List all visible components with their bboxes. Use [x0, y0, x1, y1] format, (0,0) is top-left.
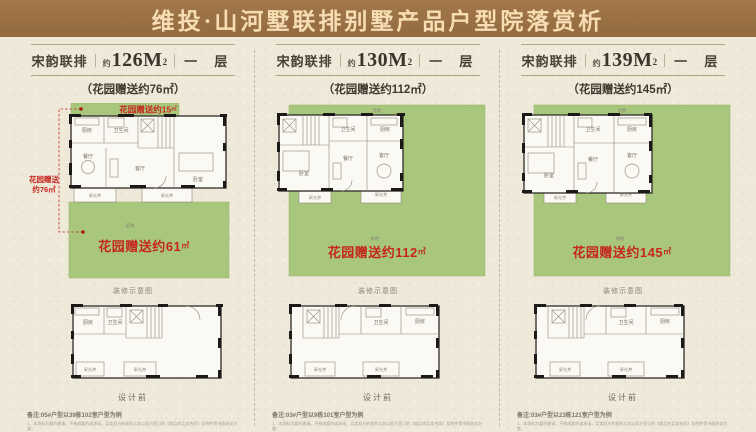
disclaimer-text: 1、本资料为要约邀请，不构成要约或承诺，买卖双方的权利义务以双方签订的《商品房买… [272, 421, 484, 432]
approx-label: 约 [348, 58, 356, 69]
room-label-living: 客厅 [378, 152, 388, 159]
room-label-bedroom: 卧室 [298, 170, 308, 177]
room-label-lightwell: 采光井 [619, 366, 632, 373]
unit-panel-139: 宋韵联排 约139M2 一 层 （花园赠送约145㎡） 卫生间 厨房 餐厅 [507, 44, 739, 432]
yard-label-south: 南院 [370, 235, 379, 242]
room-label-bath: 卫生间 [340, 126, 355, 133]
original-plan-caption: 设计前 [262, 392, 494, 403]
room-label-kitchen: 厨房 [626, 126, 636, 133]
disclaimer-line: 1、本资料为要约邀请，不构成要约或承诺，买卖双方的权利义务以双方签订的《商品房买… [27, 421, 239, 432]
panel-separator [254, 50, 255, 426]
approx-label: 约 [593, 58, 601, 69]
unit-panel-126: 宋韵联排 约126M2 一 层 （花园赠送约76㎡） 厨房 卫生间 餐厅 [17, 44, 249, 432]
room-label-lightwell: 采光井 [374, 191, 387, 198]
room-label-kitchen: 厨房 [379, 126, 389, 133]
room-label-living: 客厅 [626, 152, 636, 159]
floor-label: 一 层 [674, 51, 724, 70]
yard-label-south: 南院 [615, 235, 624, 242]
poster: 维投·山河墅联排别墅产品户型院落赏析 宋韵联排 约126M2 一 层 （花园赠送… [0, 0, 756, 432]
series-name: 宋韵联排 [32, 51, 88, 70]
garden-main-size: 花园赠送约112㎡ [327, 245, 425, 260]
room-label-bath: 卫生间 [585, 126, 600, 133]
unit-header: 宋韵联排 约130M2 一 层 [276, 44, 480, 76]
garden-subtitle: （花园赠送约145㎡） [507, 81, 739, 97]
room-label-bath: 卫生间 [618, 319, 633, 326]
approx-label: 约 [103, 58, 111, 69]
room-label-lightwell: 采光井 [374, 366, 387, 373]
unit-area: 约130M2 [348, 49, 412, 72]
original-plan-caption: 设计前 [17, 392, 249, 403]
decorated-plan-caption: 装修示意图 [17, 286, 249, 296]
note-line: 备注:03#户型以9栋101室户型为例 [272, 410, 494, 419]
poster-title: 维投·山河墅联排别墅产品户型院落赏析 [152, 2, 605, 36]
room-label-lightwell: 采光井 [308, 194, 321, 201]
disclaimer-line: 1、本资料为要约邀请，不构成要约或承诺，买卖双方的权利义务以双方签订的《商品房买… [272, 421, 484, 432]
annotation-dot [79, 107, 83, 111]
original-plan-caption: 设计前 [507, 392, 739, 403]
header-divider [664, 54, 665, 67]
garden-subtitle: （花园赠送约76㎡） [17, 81, 249, 97]
room-label-lightwell: 采光井 [558, 366, 571, 373]
garden-west-size: 约76㎡ [32, 184, 56, 194]
yard-label-north: 北院 [617, 107, 626, 114]
room-label-dining: 餐厅 [342, 155, 352, 162]
header-divider [340, 54, 341, 67]
header-divider [585, 54, 586, 67]
header-divider [419, 54, 420, 67]
yard-label-courtyard: 庭院 [125, 222, 134, 229]
garden-north-size: 花园赠送约15㎡ [119, 105, 177, 115]
area-superscript: 2 [653, 57, 658, 67]
unit-header: 宋韵联排 约139M2 一 层 [521, 44, 725, 76]
room-label-kitchen: 厨房 [81, 127, 91, 134]
room-label-lightwell: 采光井 [83, 366, 96, 373]
unit-area: 约126M2 [103, 49, 167, 72]
panel-separator [499, 50, 500, 426]
original-floorplan: 卫生间 厨房 采光井 采光井 [271, 298, 486, 390]
garden-main-size: 花园赠送约145㎡ [572, 245, 671, 260]
room-label-bath: 卫生间 [113, 127, 128, 134]
room-label-kitchen: 厨房 [659, 318, 669, 325]
room-label-lightwell: 采光井 [619, 191, 632, 198]
series-name: 宋韵联排 [522, 51, 578, 70]
header-divider [95, 54, 96, 67]
annotation-dot [81, 230, 85, 234]
garden-main-size: 花园赠送约61㎡ [98, 239, 189, 254]
garden-subtitle: （花园赠送约112㎡） [262, 81, 494, 97]
floor-label: 一 层 [184, 51, 234, 70]
header-divider [174, 54, 175, 67]
decorated-plan-caption: 装修示意图 [262, 286, 494, 296]
unit-area: 约139M2 [593, 49, 657, 72]
room-label-kitchen: 厨房 [82, 319, 92, 326]
original-floorplan: 卫生间 厨房 采光井 采光井 [516, 298, 731, 390]
series-name: 宋韵联排 [277, 51, 333, 70]
room-label-lightwell: 采光井 [133, 366, 146, 373]
area-superscript: 2 [163, 57, 168, 67]
room-label-lightwell: 采光井 [313, 366, 326, 373]
original-floorplan: 厨房 卫生间 采光井 采光井 [26, 298, 241, 390]
room-label-dining: 餐厅 [82, 153, 92, 160]
area-value: 130M [357, 49, 408, 72]
room-label-bath: 卫生间 [373, 319, 388, 326]
garden-floorplan: 卫生间 厨房 餐厅 卧室 客厅 采光井 采光井 北院 南院 花园赠送约112㎡ [271, 103, 486, 285]
disclaimer-text: 1、本资料为要约邀请，不构成要约或承诺，买卖双方的权利义务以双方签订的《商品房买… [517, 421, 729, 432]
disclaimer-text: 1、本资料为要约邀请，不构成要约或承诺，买卖双方的权利义务以双方签订的《商品房买… [27, 421, 239, 432]
floor-label: 一 层 [429, 51, 479, 70]
garden-west-size: 花园赠送 [29, 174, 59, 184]
room-label-lightwell: 采光井 [160, 192, 173, 199]
room-label-bath: 卫生间 [107, 319, 122, 326]
room-label-bedroom: 卧室 [543, 172, 553, 179]
yard-label-north: 北院 [372, 107, 381, 114]
note-line: 备注:05#户型以39栋102室户型为例 [27, 410, 249, 419]
room-label-living: 客厅 [134, 165, 144, 172]
area-value: 126M [112, 49, 163, 72]
garden-floorplan: 厨房 卫生间 餐厅 客厅 卧室 采光井 采光井 庭院 花园赠送约15㎡ 花园赠送… [26, 103, 241, 285]
room-label-lightwell: 采光井 [553, 194, 566, 201]
area-value: 139M [602, 49, 653, 72]
room-label-kitchen: 厨房 [414, 318, 424, 325]
disclaimer-line: 1、本资料为要约邀请，不构成要约或承诺，买卖双方的权利义务以双方签订的《商品房买… [517, 421, 729, 432]
room-label-bedroom: 卧室 [192, 176, 202, 183]
unit-panel-130: 宋韵联排 约130M2 一 层 （花园赠送约112㎡） 卫生间 厨房 餐厅 [262, 44, 494, 432]
room-label-dining: 餐厅 [587, 156, 597, 163]
garden-floorplan: 卫生间 厨房 餐厅 卧室 客厅 采光井 采光井 北院 南院 花园赠送约145㎡ [516, 103, 731, 285]
area-superscript: 2 [408, 57, 413, 67]
unit-header: 宋韵联排 约126M2 一 层 [31, 44, 235, 76]
note-line: 备注:03#户型以23栋121室户型为例 [517, 410, 739, 419]
title-bar: 维投·山河墅联排别墅产品户型院落赏析 [0, 0, 756, 37]
decorated-plan-caption: 装修示意图 [507, 286, 739, 296]
room-label-lightwell: 采光井 [88, 192, 101, 199]
